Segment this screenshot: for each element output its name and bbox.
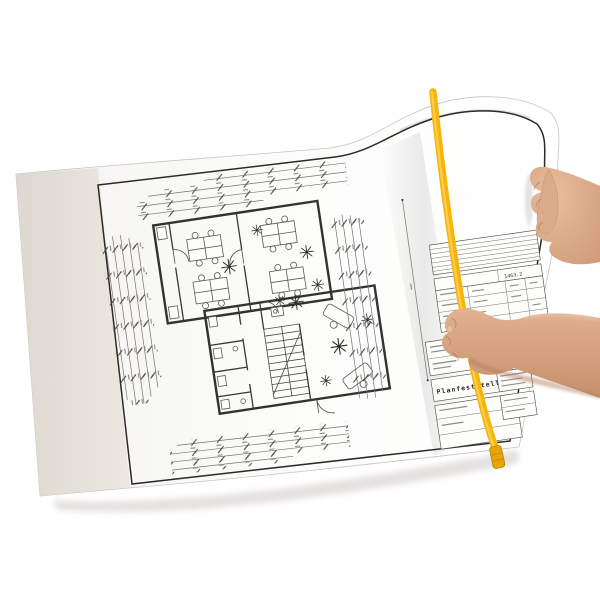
photo-canvas: 1463.2 [0,0,600,600]
fingernail [448,326,453,332]
product-photo: 1463.2 [0,0,600,600]
plan-sheet: 1463.2 [16,97,559,496]
